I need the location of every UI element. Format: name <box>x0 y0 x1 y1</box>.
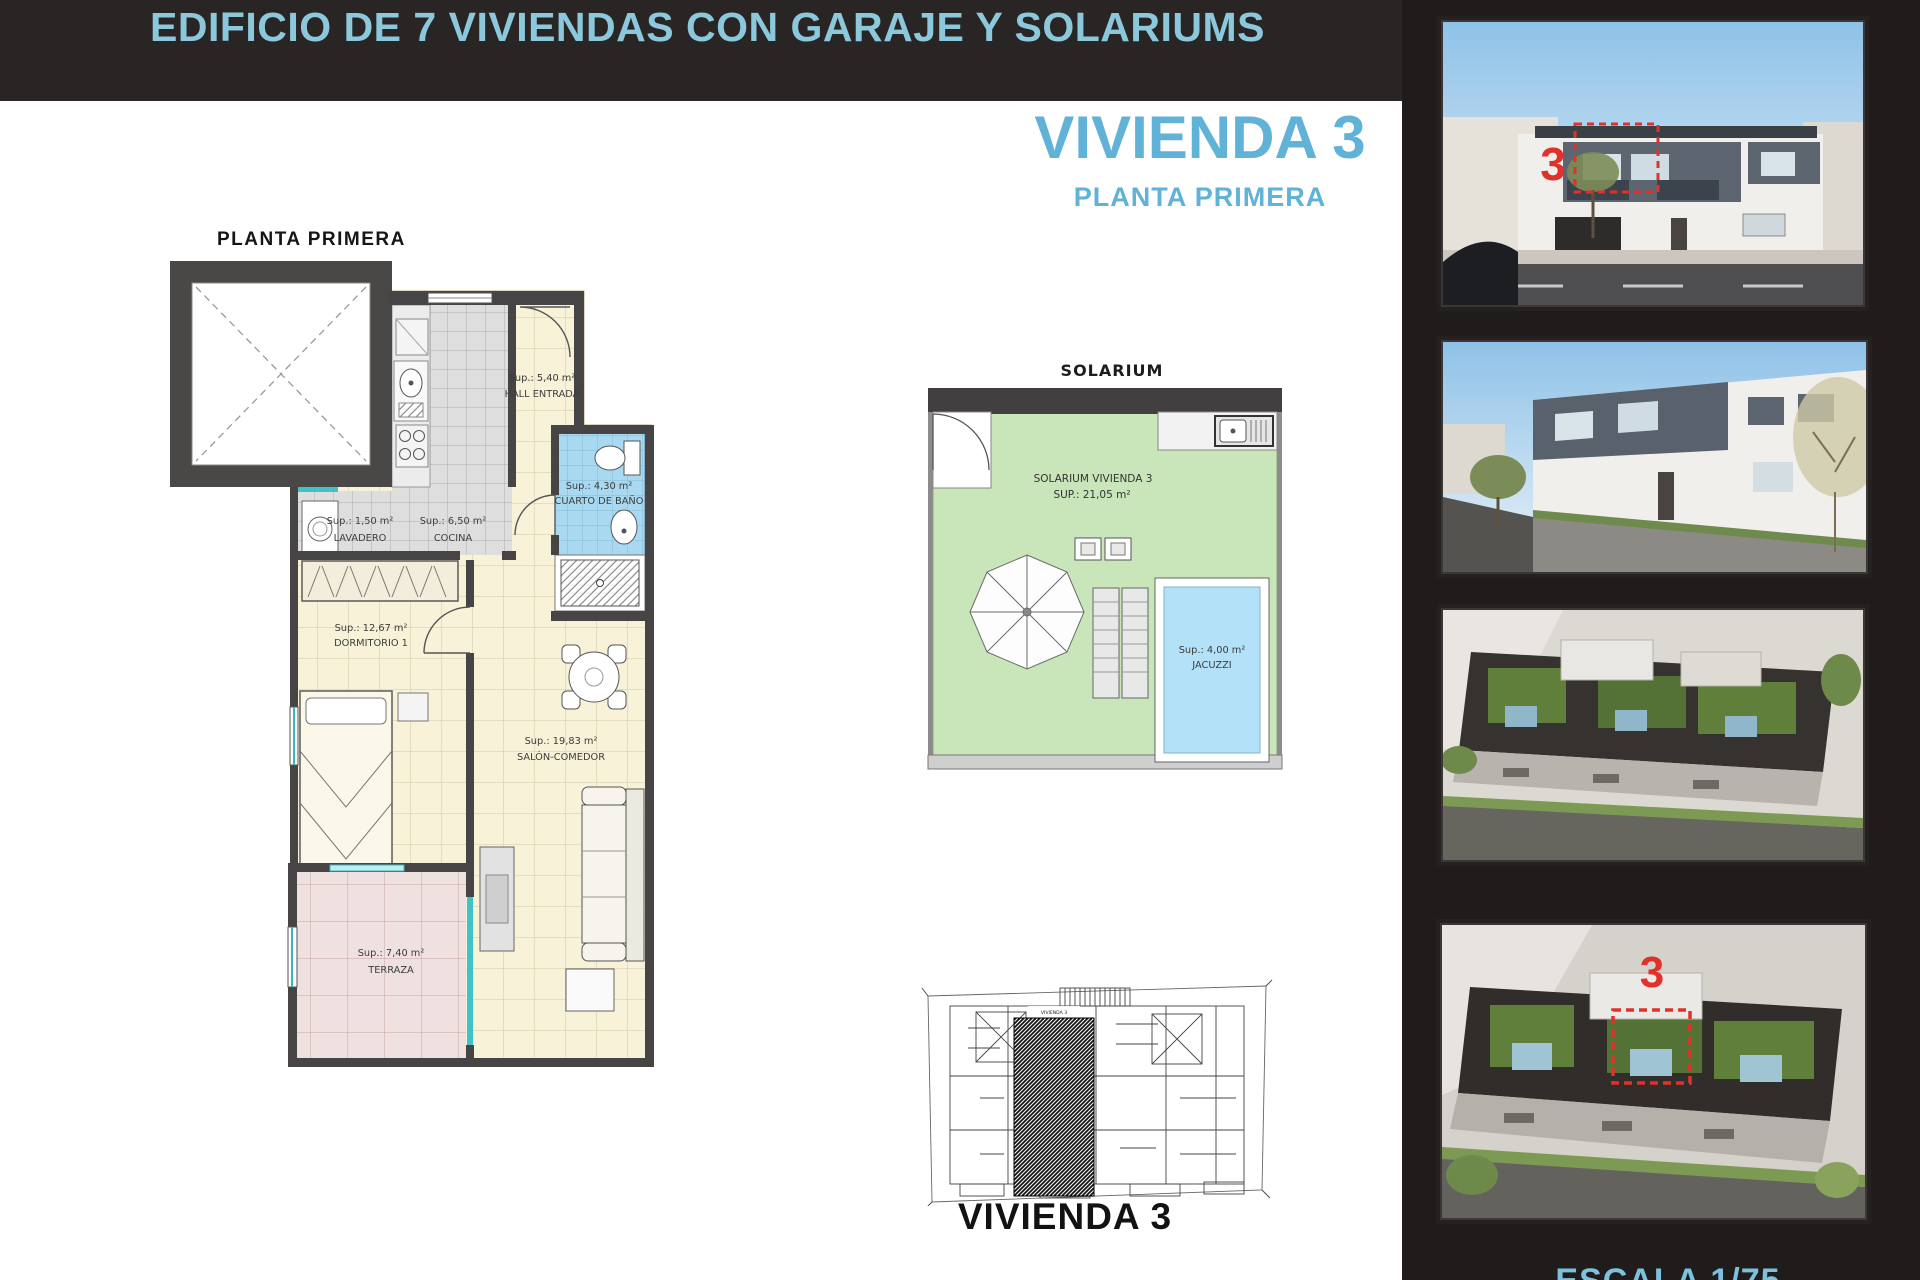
terrace-name-label: TERRAZA <box>367 965 414 976</box>
hall-name-label: HALL ENTRADA <box>505 389 580 400</box>
brochure-page: EDIFICIO DE 7 VIVIENDAS CON GARAJE Y SOL… <box>0 0 1920 1280</box>
bedroom-area-label: Sup.: 12,67 m² <box>335 623 408 634</box>
photo1-unit-marker: 3 <box>1540 138 1566 190</box>
aerial-rooftop-marked-render: 3 <box>1442 925 1865 1218</box>
heading-subtitle: PLANTA PRIMERA <box>1020 182 1380 213</box>
photo4-unit-marker: 3 <box>1640 948 1664 997</box>
solarium-drawing <box>928 388 1282 769</box>
solarium-area-label: SUP.: 21,05 m² <box>1053 489 1130 501</box>
aerial-rooftop-render <box>1443 610 1863 860</box>
scale-caption: ESCALA 1/75 <box>1528 1262 1808 1280</box>
key-plan-outline <box>922 980 1272 1206</box>
bath-name-label: CUARTO DE BAÑO <box>555 494 644 507</box>
jacuzzi-name-label: JACUZZI <box>1191 660 1231 671</box>
top-banner: EDIFICIO DE 7 VIVIENDAS CON GARAJE Y SOL… <box>0 0 1402 101</box>
key-plan-caption: VIVIENDA 3 <box>915 1196 1215 1238</box>
jacuzzi-area-label: Sup.: 4,00 m² <box>1179 645 1246 656</box>
main-floor-plan: Sup.: 5,40 m² HALL ENTRADA Sup.: 4,30 m²… <box>162 255 662 1070</box>
heading-block: VIVIENDA 3 PLANTA PRIMERA <box>1020 106 1380 213</box>
solarium-plan: SOLARIUM <box>915 350 1295 800</box>
terrace-area-label: Sup.: 7,40 m² <box>358 948 425 959</box>
floor-plan-title: PLANTA PRIMERA <box>217 229 406 251</box>
key-plan: VIVIENDA 3 <box>920 978 1276 1206</box>
front-elevation-render: 3 <box>1443 22 1863 305</box>
key-plan-unit-tag: VIVIENDA 3 <box>1041 1010 1067 1016</box>
living-area-label: Sup.: 19,83 m² <box>525 736 598 747</box>
elevator-shaft <box>170 261 392 487</box>
kitchen-name-label: COCINA <box>434 533 473 544</box>
bedroom-name-label: DORMITORIO 1 <box>334 638 408 649</box>
heading-title: VIVIENDA 3 <box>1020 106 1380 170</box>
bath-area-label: Sup.: 4,30 m² <box>566 481 633 492</box>
photo-corner-street <box>1443 342 1866 572</box>
key-plan-unit3-highlight <box>1014 1018 1094 1196</box>
laundry-area-label: Sup.: 1,50 m² <box>327 516 394 527</box>
banner-title: EDIFICIO DE 7 VIVIENDAS CON GARAJE Y SOL… <box>0 0 1402 51</box>
room-bathroom <box>555 430 645 611</box>
solarium-unit-label: SOLARIUM VIVIENDA 3 <box>1034 473 1153 485</box>
solarium-title: SOLARIUM <box>1061 361 1164 380</box>
photo-sidebar: 3 <box>1402 0 1920 1280</box>
photo-front-elevation: 3 <box>1443 22 1863 305</box>
hall-area-label: Sup.: 5,40 m² <box>509 373 576 384</box>
photo-aerial-rooftop <box>1443 610 1863 860</box>
corner-street-render <box>1443 342 1866 572</box>
laundry-name-label: LAVADERO <box>334 533 387 544</box>
photo-aerial-rooftop-marked: 3 <box>1442 925 1865 1218</box>
living-name-label: SALÓN-COMEDOR <box>517 750 605 763</box>
kitchen-area-label: Sup.: 6,50 m² <box>420 516 487 527</box>
